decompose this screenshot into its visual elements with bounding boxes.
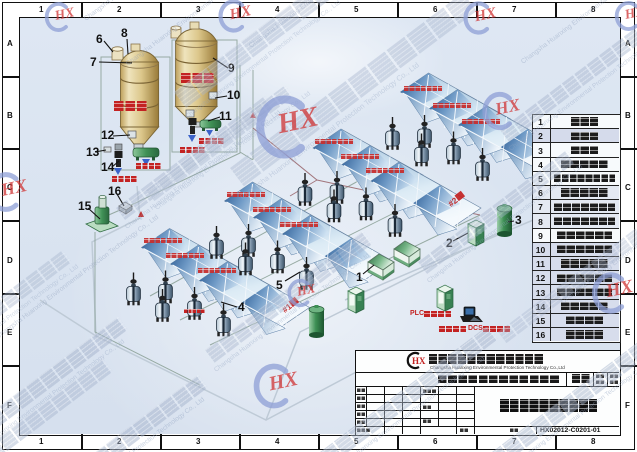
svg-text:HX: HX: [412, 356, 426, 366]
